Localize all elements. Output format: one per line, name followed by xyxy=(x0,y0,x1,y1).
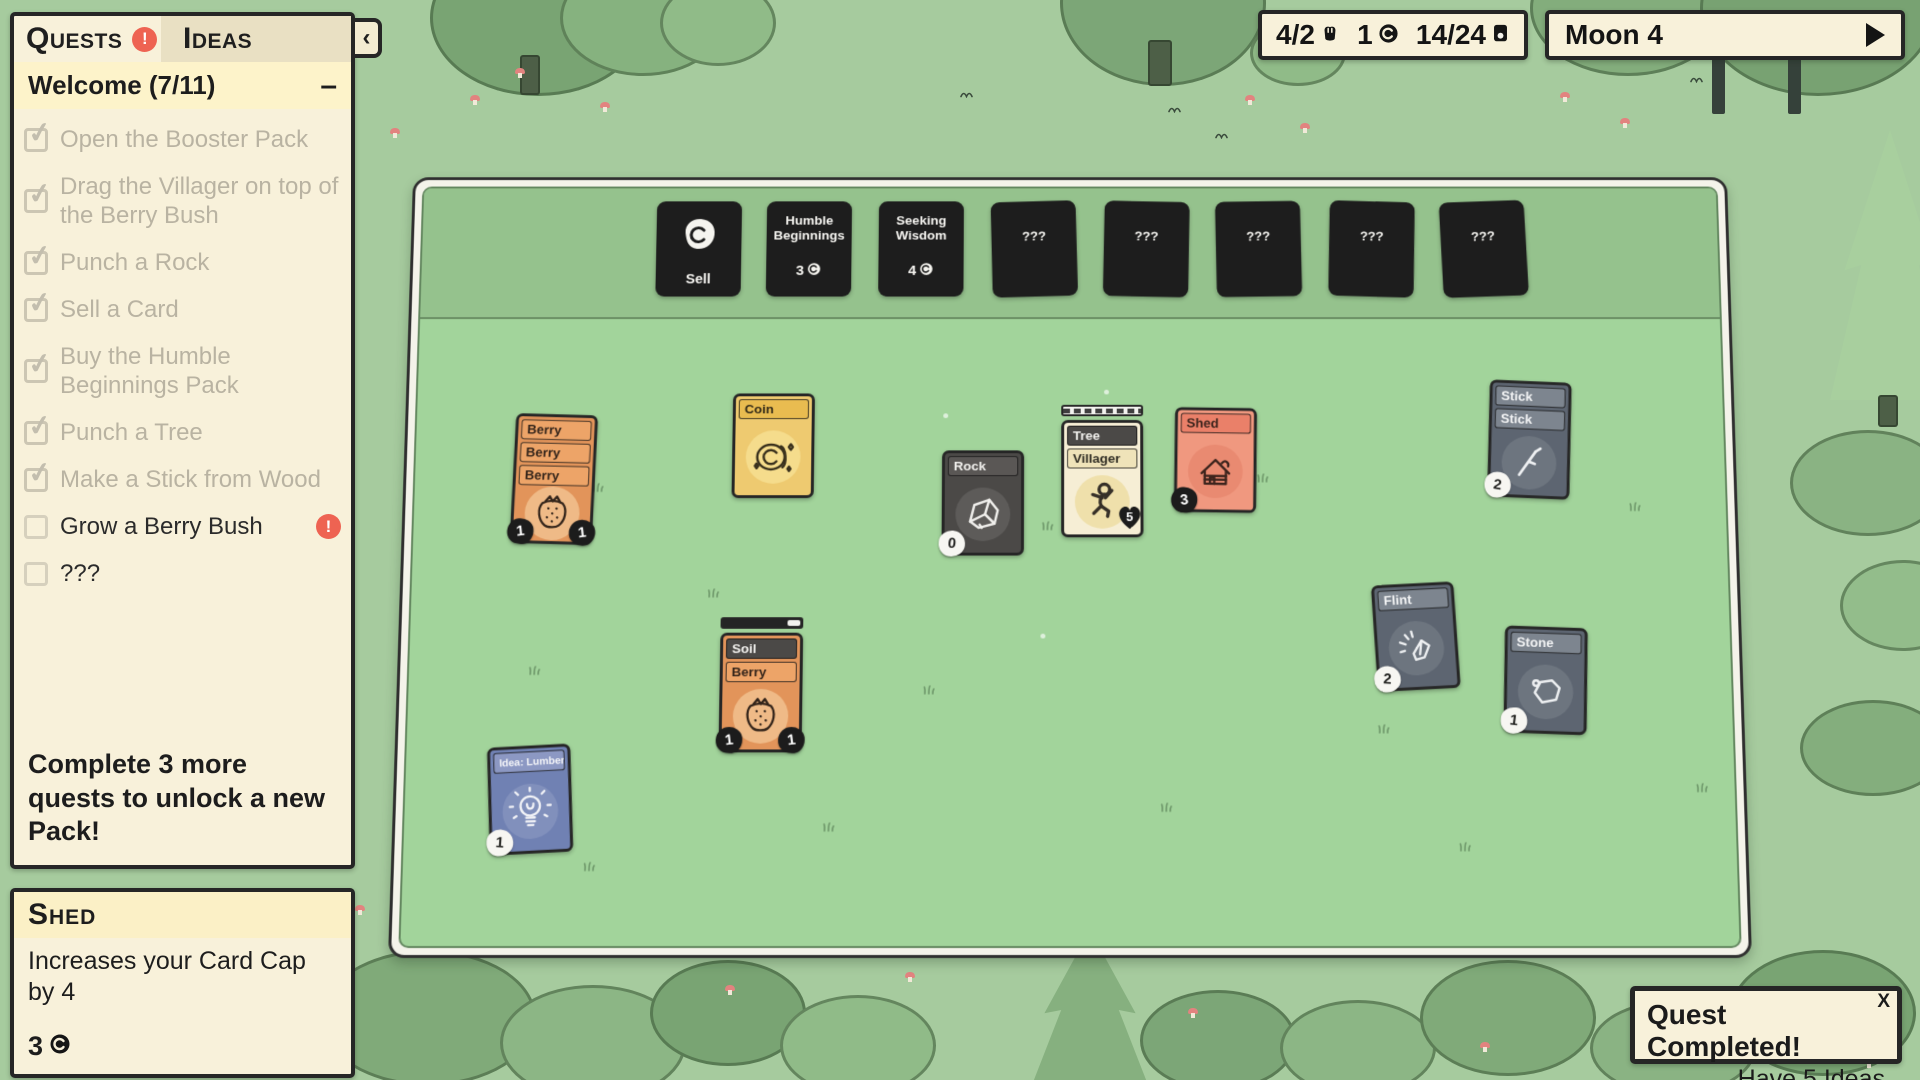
card-title: Shed xyxy=(1181,413,1251,434)
pack-name-label: ??? xyxy=(1329,228,1414,245)
booster-pack-seeking-wisdom[interactable]: Seeking Wisdom4 xyxy=(878,201,964,296)
checked-checkbox-icon xyxy=(24,298,48,322)
checked-checkbox-icon xyxy=(24,189,48,213)
card-face: Flint2 xyxy=(1371,581,1461,692)
quest-item: ??? xyxy=(24,559,341,588)
tab-quests[interactable]: Quests ! xyxy=(14,16,161,62)
pack-cost-value: 4 xyxy=(908,263,916,279)
stick-stack[interactable]: StickStick2 xyxy=(1487,380,1572,500)
progress-fill xyxy=(788,620,801,626)
pack-cost-label: 4 xyxy=(878,262,963,280)
card-sell-value: 3 xyxy=(14,1023,351,1074)
card-face: SoilBerry11 xyxy=(718,633,803,753)
food-icon xyxy=(1320,19,1340,51)
checked-checkbox-icon xyxy=(24,359,48,383)
quest-item: Make a Stick from Wood xyxy=(24,465,341,494)
card-cap-counter: 14/24 xyxy=(1416,19,1510,51)
grass-decoration xyxy=(1041,518,1055,535)
quest-list: Open the Booster PackDrag the Villager o… xyxy=(14,109,351,588)
bush-decoration xyxy=(1140,990,1296,1080)
mushroom-decoration xyxy=(1560,92,1570,98)
quest-panel: Quests ! Ideas ‹ Welcome (7/11) – Open t… xyxy=(10,12,355,869)
card-face: Rock0 xyxy=(941,450,1024,555)
mushroom-decoration xyxy=(905,972,915,978)
card-sell-value-number: 3 xyxy=(28,1031,43,1062)
quest-footer-text: Complete 3 more quests to unlock a new P… xyxy=(14,734,351,865)
bird-icon xyxy=(1215,126,1228,144)
booster-pack-unknown[interactable]: ??? xyxy=(1103,201,1190,298)
quest-alert-icon: ! xyxy=(316,514,341,539)
coin-card[interactable]: Coin xyxy=(731,393,814,498)
card-face: StickStick2 xyxy=(1487,380,1572,500)
value-badge: 2 xyxy=(1374,666,1402,694)
card-face: BerryBerryBerry11 xyxy=(509,413,598,545)
grass-decoration xyxy=(1695,780,1709,798)
grass-decoration xyxy=(922,682,936,700)
tab-quests-label: Quests xyxy=(26,22,122,56)
card-title: Stick xyxy=(1495,408,1566,431)
coin-count: 1 xyxy=(1357,19,1373,51)
stone-card[interactable]: Stone1 xyxy=(1503,625,1587,735)
card-title: Idea: Lumber Camp xyxy=(493,750,565,774)
mushroom-decoration xyxy=(1188,1008,1198,1014)
coin-counter: 1 xyxy=(1357,19,1399,51)
mushroom-decoration xyxy=(470,95,480,101)
card-title: Villager xyxy=(1067,448,1137,468)
card-face: Stone1 xyxy=(1503,625,1587,735)
checked-checkbox-icon xyxy=(24,468,48,492)
card-info-description: Increases your Card Cap by 4 xyxy=(14,938,351,1016)
sparkle-decoration xyxy=(1104,390,1109,395)
grass-decoration xyxy=(1377,721,1391,739)
mushroom-decoration xyxy=(1245,95,1255,101)
coin-icon xyxy=(49,1031,71,1062)
quest-completed-toast: X Quest Completed! Have 5 Ideas xyxy=(1630,986,1902,1064)
grass-decoration xyxy=(1458,839,1472,857)
card-face: TreeVillager5 xyxy=(1061,420,1143,537)
checked-checkbox-icon xyxy=(24,128,48,152)
quest-group-collapse-icon[interactable]: – xyxy=(320,76,337,96)
quest-group-header[interactable]: Welcome (7/11) – xyxy=(14,62,351,109)
quest-item: Punch a Tree xyxy=(24,418,341,447)
mushroom-decoration xyxy=(515,68,525,74)
grass-decoration xyxy=(582,859,596,877)
pack-cost-value: 3 xyxy=(796,263,804,279)
pack-name-label: ??? xyxy=(1440,228,1526,246)
mushroom-decoration xyxy=(355,905,365,911)
quest-item: Buy the Humble Beginnings Pack xyxy=(24,342,341,400)
pack-cost-label: 3 xyxy=(766,262,851,280)
quest-item-label: Sell a Card xyxy=(60,295,341,324)
coin-icon xyxy=(737,422,808,492)
grass-decoration xyxy=(1256,470,1270,487)
card-title: Coin xyxy=(739,399,809,419)
coin-icon xyxy=(1378,19,1399,51)
card-icon xyxy=(1491,19,1510,51)
shed-card[interactable]: Shed3 xyxy=(1174,407,1257,513)
mushroom-decoration xyxy=(600,102,610,108)
quest-item-label: Punch a Rock xyxy=(60,248,341,277)
pack-name-label: ??? xyxy=(991,228,1076,245)
quest-item-label: Buy the Humble Beginnings Pack xyxy=(60,342,341,400)
coin-icon xyxy=(807,262,822,280)
pack-name-label: ??? xyxy=(1216,229,1301,245)
quest-item: Grow a Berry Bush! xyxy=(24,512,341,541)
play-icon[interactable] xyxy=(1866,23,1885,47)
svg-text:5: 5 xyxy=(1126,509,1133,524)
quest-item-label: Punch a Tree xyxy=(60,418,341,447)
checked-checkbox-icon xyxy=(24,421,48,445)
grass-decoration xyxy=(706,585,720,602)
moon-panel: Moon 4 xyxy=(1545,10,1905,60)
quest-item-label: Grow a Berry Bush xyxy=(60,512,304,541)
progress-bar xyxy=(720,617,803,629)
collapse-panel-button[interactable]: ‹ xyxy=(355,18,382,58)
booster-pack-humble-beginnings[interactable]: Humble Beginnings3 xyxy=(766,201,852,296)
quest-item: Sell a Card xyxy=(24,295,341,324)
quest-item-label: ??? xyxy=(60,559,341,588)
coin-icon xyxy=(656,213,742,262)
card-face: Coin xyxy=(731,393,814,498)
card-title: Berry xyxy=(518,465,589,487)
value-badge: 1 xyxy=(485,829,514,857)
quest-item-label: Open the Booster Pack xyxy=(60,125,341,154)
tree-villager-stack[interactable]: TreeVillager5 xyxy=(1061,405,1143,537)
card-title: Berry xyxy=(726,662,797,682)
booster-pack-unknown[interactable]: ??? xyxy=(991,200,1078,297)
berry-stack[interactable]: BerryBerryBerry11 xyxy=(509,413,598,545)
stacklands-game-screen: SellHumble Beginnings3Seeking Wisdom4???… xyxy=(0,0,1920,1080)
moon-label: Moon 4 xyxy=(1565,19,1663,51)
quest-item-label: Make a Stick from Wood xyxy=(60,465,341,494)
card-title: Soil xyxy=(726,638,797,658)
mushroom-decoration xyxy=(725,985,735,991)
toast-subtitle: Have 5 Ideas xyxy=(1647,1065,1885,1080)
booster-pack-unknown[interactable]: ??? xyxy=(1328,200,1414,297)
health-badge: 5 xyxy=(1115,504,1144,531)
bush-decoration xyxy=(1420,960,1596,1076)
flint-card[interactable]: Flint2 xyxy=(1371,581,1461,692)
mushroom-decoration xyxy=(1480,1042,1490,1048)
pine-tree-decoration xyxy=(1830,130,1920,400)
bird-icon xyxy=(1168,100,1181,118)
resource-bar: 4/2 1 14/24 xyxy=(1258,10,1528,60)
quest-panel-header: Quests ! Ideas ‹ xyxy=(14,16,351,62)
value-badge: 1 xyxy=(506,517,535,546)
pack-name-label: ??? xyxy=(1104,228,1189,245)
quest-item: Open the Booster Pack xyxy=(24,125,341,154)
card-title: Berry xyxy=(521,419,592,441)
food-counter: 4/2 xyxy=(1276,19,1340,51)
pack-name-label: Sell xyxy=(655,272,740,288)
board-field: SellHumble Beginnings3Seeking Wisdom4???… xyxy=(398,187,1741,948)
idea-lumber-camp-card[interactable]: Idea: Lumber Camp1 xyxy=(487,743,573,855)
bush-decoration xyxy=(1280,1000,1436,1080)
card-title: Stone xyxy=(1511,631,1582,654)
card-info-title: Shed xyxy=(14,892,351,938)
card-info-panel: Shed Increases your Card Cap by 4 3 xyxy=(10,888,355,1078)
card-title: Stick xyxy=(1495,385,1566,408)
bird-icon xyxy=(960,85,973,103)
booster-pack-unknown[interactable]: ??? xyxy=(1439,200,1529,298)
card-count: 14/24 xyxy=(1416,19,1486,51)
signpost-decoration xyxy=(1788,58,1801,114)
quest-group-title: Welcome (7/11) xyxy=(28,70,215,101)
signpost-decoration xyxy=(1712,58,1725,114)
card-title: Rock xyxy=(948,456,1018,476)
booster-pack-sell[interactable]: Sell xyxy=(655,201,742,296)
card-face: Idea: Lumber Camp1 xyxy=(487,743,573,855)
coin-icon xyxy=(919,262,934,280)
grass-decoration xyxy=(1628,499,1642,516)
bush-decoration xyxy=(1790,430,1920,536)
bird-icon xyxy=(1690,70,1703,88)
progress-bar xyxy=(1061,405,1143,416)
quest-item: Punch a Rock xyxy=(24,248,341,277)
grass-decoration xyxy=(1159,799,1173,817)
mushroom-decoration xyxy=(1620,118,1630,124)
card-title: Berry xyxy=(520,442,591,464)
pack-name-label: Seeking Wisdom xyxy=(879,213,964,243)
grass-decoration xyxy=(527,663,541,680)
tree-trunk-decoration xyxy=(1878,395,1898,427)
sparkle-decoration xyxy=(943,413,948,418)
empty-checkbox-icon xyxy=(24,515,48,539)
tab-ideas-label: Ideas xyxy=(183,22,252,56)
mushroom-decoration xyxy=(390,128,400,134)
soil-berry-stack[interactable]: SoilBerry11 xyxy=(718,617,803,752)
booster-pack-unknown[interactable]: ??? xyxy=(1215,201,1302,297)
quest-item: Drag the Villager on top of the Berry Bu… xyxy=(24,172,341,230)
tab-ideas[interactable]: Ideas xyxy=(161,16,351,62)
checked-checkbox-icon xyxy=(24,251,48,275)
game-board: SellHumble Beginnings3Seeking Wisdom4???… xyxy=(388,177,1752,958)
rock-card[interactable]: Rock0 xyxy=(941,450,1024,555)
sparkle-decoration xyxy=(1040,634,1045,639)
bush-decoration xyxy=(1800,700,1920,796)
card-title: Flint xyxy=(1377,587,1449,611)
grass-decoration xyxy=(821,819,835,837)
value-badge: 1 xyxy=(568,518,597,547)
card-title: Tree xyxy=(1067,426,1137,446)
empty-checkbox-icon xyxy=(24,562,48,586)
tree-trunk-decoration xyxy=(1148,40,1172,86)
food-count: 4/2 xyxy=(1276,19,1315,51)
quests-alert-icon: ! xyxy=(132,27,157,52)
pack-row: SellHumble Beginnings3Seeking Wisdom4???… xyxy=(420,188,1720,319)
tree-trunk-decoration xyxy=(520,55,540,95)
bush-decoration xyxy=(1840,560,1920,651)
mushroom-decoration xyxy=(1300,123,1310,129)
toast-title: Quest Completed! xyxy=(1647,999,1885,1063)
quest-item-label: Drag the Villager on top of the Berry Bu… xyxy=(60,172,341,230)
card-face: Shed3 xyxy=(1174,407,1257,513)
pack-name-label: Humble Beginnings xyxy=(767,213,852,243)
close-icon[interactable]: X xyxy=(1877,991,1890,1013)
